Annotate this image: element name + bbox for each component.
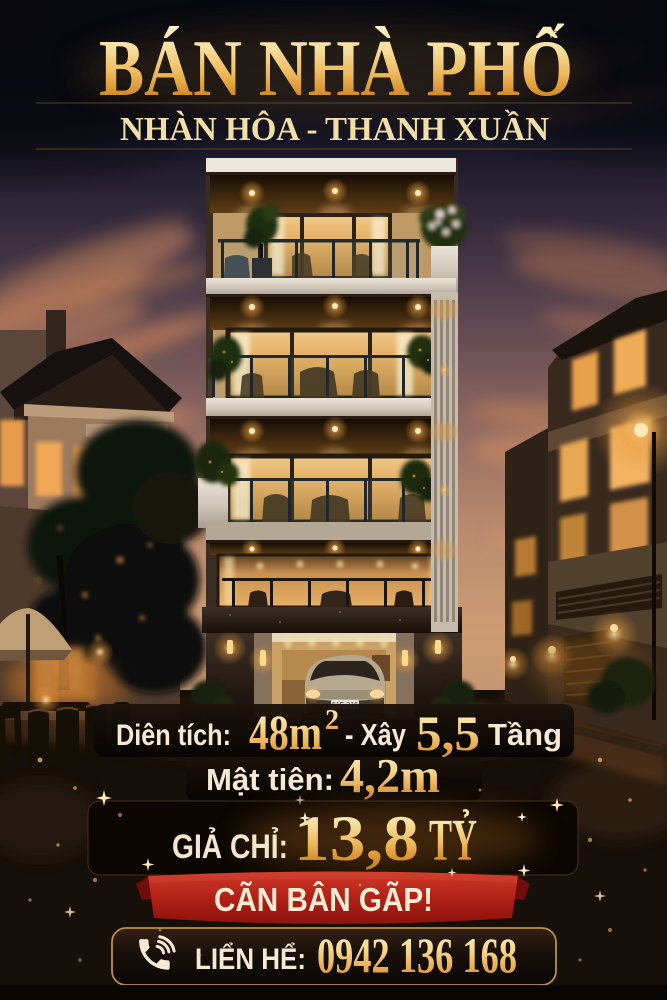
svg-text:TỶ: TỶ (429, 807, 477, 873)
svg-text:0942 136 168: 0942 136 168 (317, 927, 517, 983)
svg-text:BÁN NHÀ PHỐ: BÁN NHÀ PHỐ (99, 23, 573, 113)
svg-text:13,8: 13,8 (294, 803, 419, 875)
svg-text:NHÀN HÔA - THANH XUẦN: NHÀN HÔA - THANH XUẦN (120, 109, 549, 148)
svg-text:Tầng: Tầng (488, 717, 562, 752)
svg-text:GIẢ CHỈ:: GIẢ CHỈ: (172, 828, 288, 866)
svg-text:Mật tiên:: Mật tiên: (206, 762, 334, 797)
svg-text:4,2m: 4,2m (340, 748, 440, 803)
svg-text:Diên tích:: Diên tích: (116, 719, 231, 752)
svg-text:- Xây: - Xây (345, 717, 407, 752)
svg-text:CÃN BÂN GÃP!: CÃN BÂN GÃP! (214, 881, 433, 918)
svg-text:LIỂN HỂ:: LIỂN HỂ: (195, 942, 306, 976)
svg-text:48m: 48m (249, 704, 322, 760)
svg-text:2: 2 (325, 705, 339, 736)
